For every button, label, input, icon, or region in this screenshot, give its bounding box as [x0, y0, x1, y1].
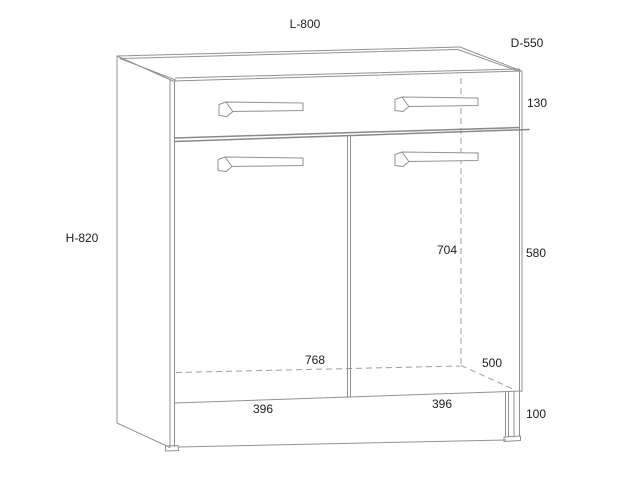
- cabinet-left-side-panel: [117, 56, 170, 448]
- drawer-handle-right: [395, 97, 478, 112]
- hidden-interior-lines: [176, 78, 514, 390]
- label-drawer-front-height: 130: [527, 96, 547, 110]
- door-handle-left: [218, 157, 303, 172]
- label-interior-depth: 500: [482, 356, 502, 370]
- label-right-door-width: 396: [432, 397, 452, 411]
- label-interior-height: 704: [437, 243, 457, 257]
- label-door-panel-height: 580: [526, 246, 546, 260]
- cabinet-top-face: [117, 47, 522, 81]
- cabinet-legs: [166, 392, 521, 451]
- cabinet-line-art: L-800 D-550 130 H-820 704 580 768 500 39…: [0, 0, 640, 480]
- label-left-door-width: 396: [253, 402, 273, 416]
- cabinet-dimension-drawing: L-800 D-550 130 H-820 704 580 768 500 39…: [0, 0, 640, 480]
- label-overall-width: L-800: [290, 17, 321, 31]
- cabinet-front-face: [170, 72, 529, 447]
- label-leg-height: 100: [526, 407, 546, 421]
- label-overall-height: H-820: [66, 231, 99, 245]
- drawer-handle-left: [219, 102, 303, 117]
- label-interior-width: 768: [305, 353, 325, 367]
- label-overall-depth: D-550: [511, 36, 544, 50]
- door-handle-right: [395, 152, 478, 167]
